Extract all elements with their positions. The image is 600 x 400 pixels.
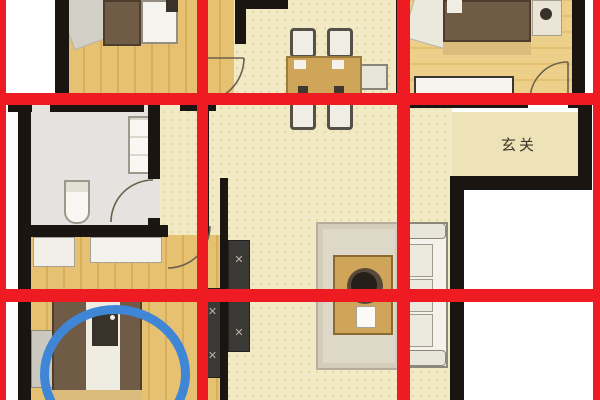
floor-plan-image: 玄关 ✕ ✕ ✕ ✕ ✕ xyxy=(0,0,600,400)
grid-line-vertical xyxy=(397,0,410,400)
grid-line-vertical xyxy=(593,0,600,400)
grid-line-vertical xyxy=(0,0,6,400)
grid-line-horizontal xyxy=(0,289,600,302)
grid-line-horizontal xyxy=(0,93,600,105)
grid-line-vertical xyxy=(197,0,208,400)
